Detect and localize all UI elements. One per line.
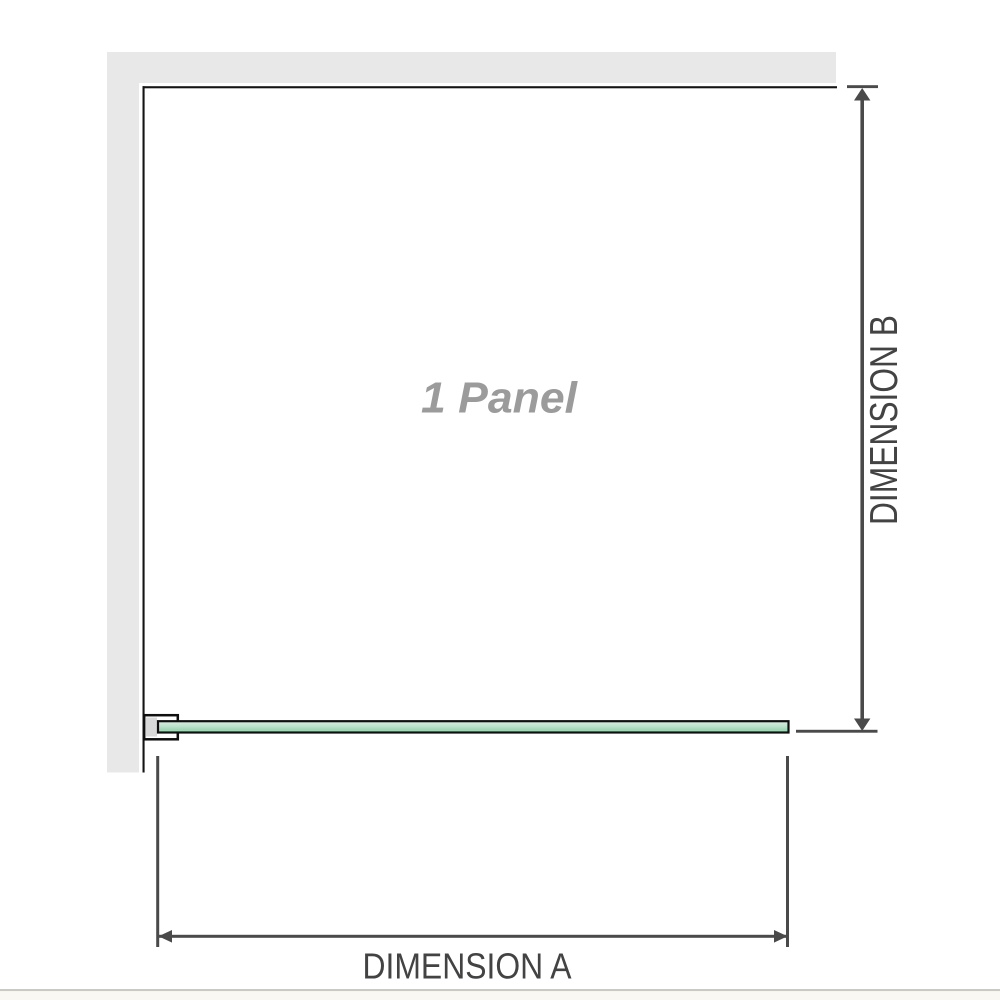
svg-text:DIMENSION A: DIMENSION A [363,946,572,987]
svg-text:DIMENSION B: DIMENSION B [863,315,906,525]
svg-text:1 Panel: 1 Panel [421,374,578,423]
